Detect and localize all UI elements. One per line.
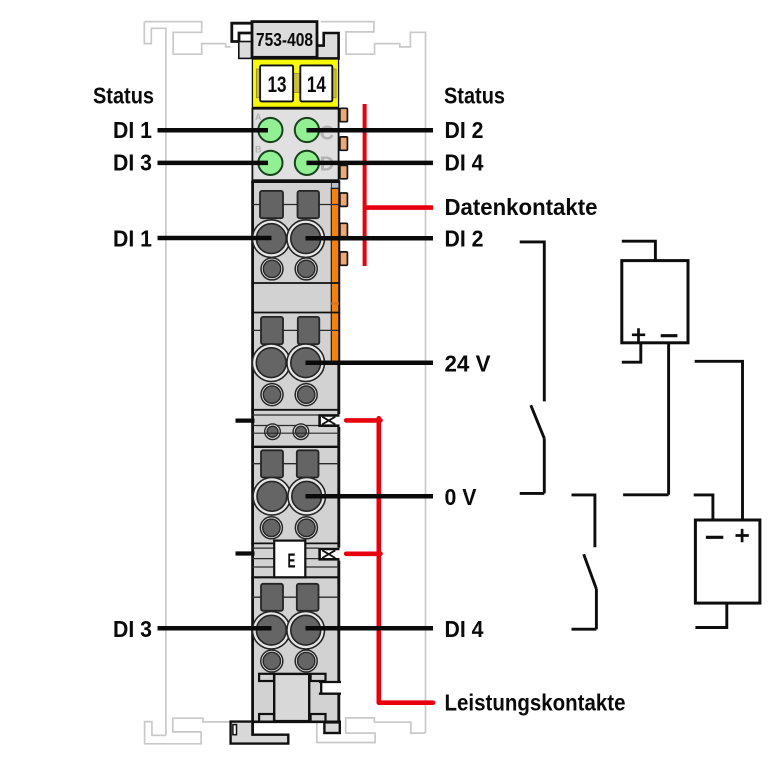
- svg-text:A: A: [255, 112, 262, 122]
- svg-text:E: E: [288, 550, 296, 573]
- svg-text:0 V: 0 V: [445, 484, 477, 510]
- svg-text:DI 4: DI 4: [445, 150, 484, 176]
- svg-text:14: 14: [307, 72, 326, 97]
- svg-text:B: B: [255, 144, 262, 154]
- svg-text:Status: Status: [93, 83, 154, 109]
- svg-text:C: C: [320, 122, 334, 144]
- svg-text:13: 13: [268, 72, 287, 97]
- svg-text:DI 1: DI 1: [113, 225, 152, 251]
- svg-text:DI 3: DI 3: [113, 616, 152, 642]
- svg-text:DI 3: DI 3: [113, 150, 152, 176]
- svg-text:753-408: 753-408: [256, 30, 313, 50]
- svg-text:DI 1: DI 1: [113, 117, 152, 143]
- svg-text:24 V: 24 V: [445, 351, 491, 377]
- svg-text:DI 4: DI 4: [445, 616, 484, 642]
- svg-text:Status: Status: [444, 83, 505, 109]
- svg-text:DI 2: DI 2: [445, 117, 484, 143]
- svg-text:DI 2: DI 2: [445, 225, 484, 251]
- svg-text:Datenkontakte: Datenkontakte: [445, 194, 598, 220]
- svg-text:Leistungskontakte: Leistungskontakte: [445, 690, 626, 716]
